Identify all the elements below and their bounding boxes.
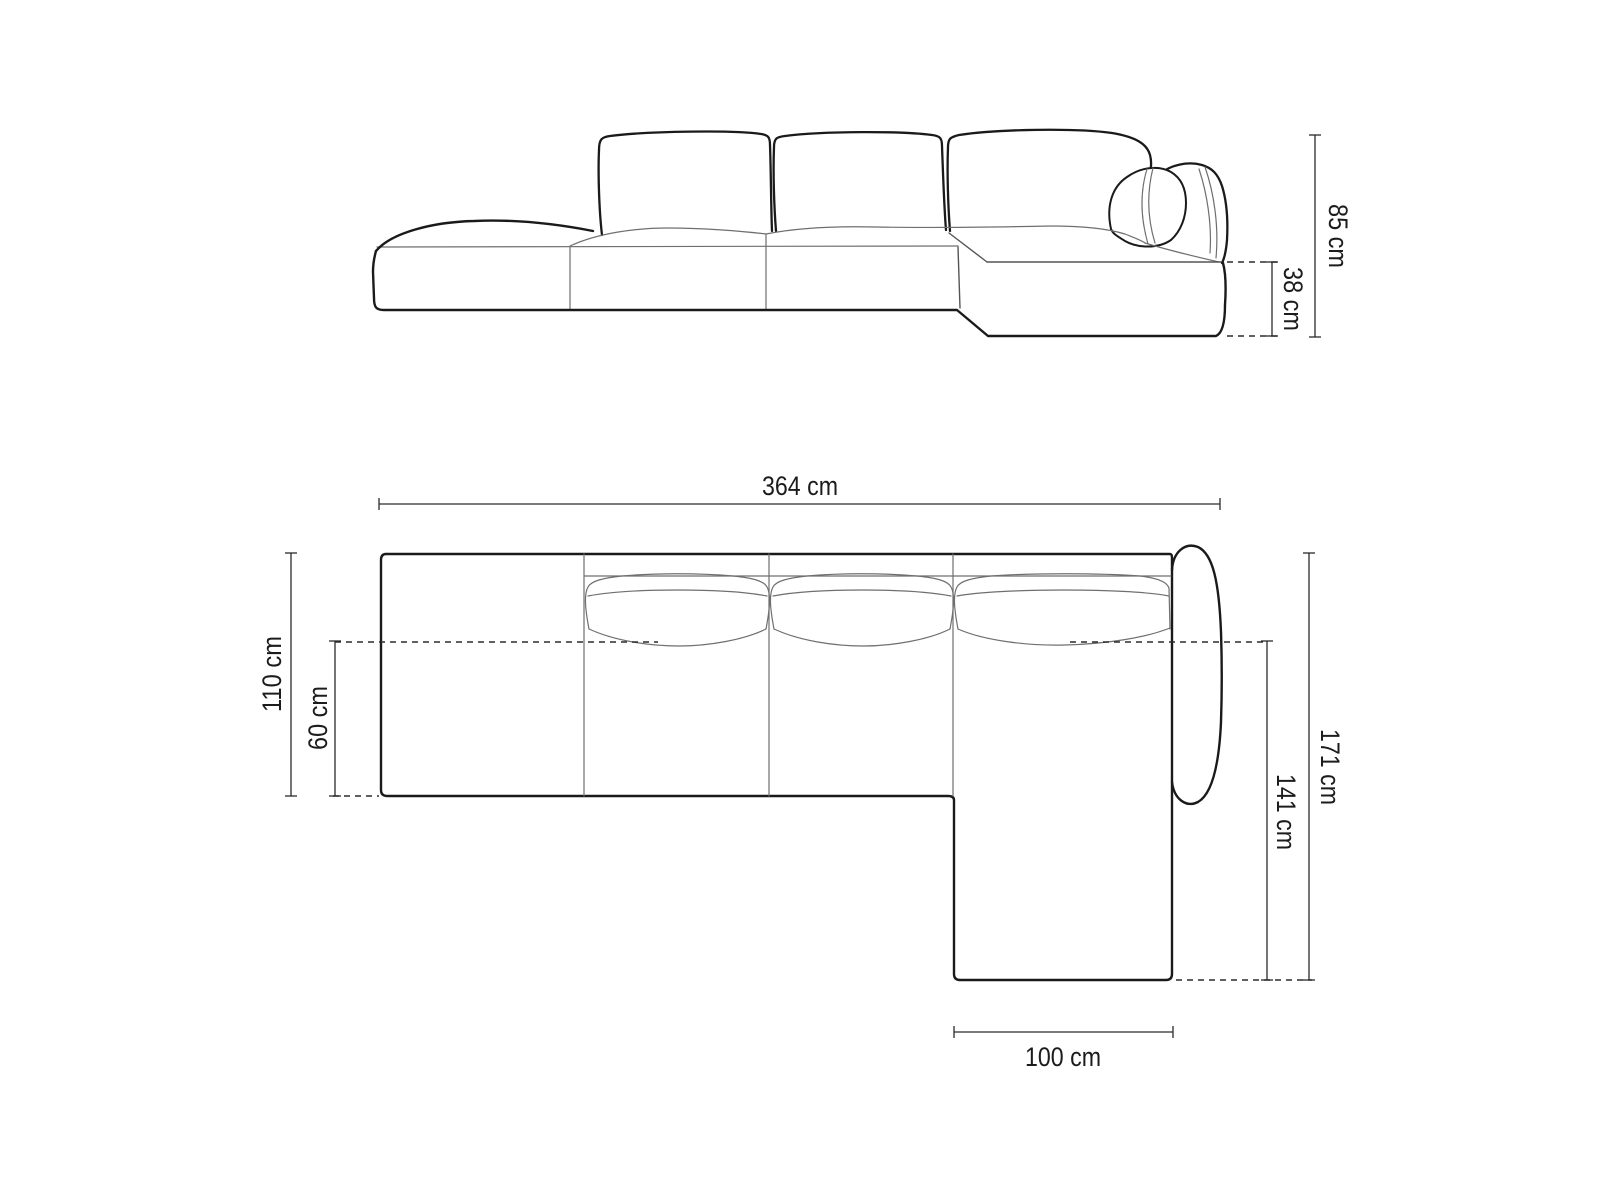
dim-label-100cm: 100 cm <box>1025 1042 1101 1072</box>
dim-label-60cm: 60 cm <box>303 686 333 750</box>
dim-label-141cm: 141 cm <box>1271 774 1301 850</box>
dimension-chaise-length: 141 cm <box>1070 641 1312 980</box>
top-plan-view: 364 cm 110 cm 60 cm 171 cm <box>257 471 1345 1072</box>
dim-label-38cm: 38 cm <box>1278 267 1308 331</box>
front-elevation-view: 85 cm 38 cm <box>373 130 1353 337</box>
back-cushion-2 <box>774 132 946 231</box>
plan-seat-cushion-3 <box>954 574 1170 645</box>
dim-label-364cm: 364 cm <box>762 471 838 501</box>
dimension-diagram: 85 cm 38 cm <box>0 0 1600 1200</box>
dimension-seat-depth: 60 cm <box>303 641 658 796</box>
dimension-total-height: 85 cm <box>1309 135 1353 337</box>
seat-front-top-edge <box>377 246 958 247</box>
dim-label-110cm: 110 cm <box>257 636 287 712</box>
corner-seat-diagonal-edge <box>949 233 987 262</box>
dimension-chaise-width: 100 cm <box>954 1026 1173 1072</box>
dimension-total-length: 364 cm <box>379 471 1220 510</box>
dim-label-85cm: 85 cm <box>1323 204 1353 268</box>
plan-seat-cushion-1 <box>585 574 769 646</box>
dimension-base-height: 38 cm <box>1227 262 1308 336</box>
dimension-right-side-depth: 171 cm <box>1303 553 1345 980</box>
dim-label-171cm: 171 cm <box>1315 729 1345 805</box>
corner-base-vertical-edge <box>958 247 960 308</box>
sofa-front-drawing <box>373 130 1227 336</box>
sofa-base-outline <box>373 251 1226 336</box>
side-bolster-plan <box>1172 546 1222 804</box>
back-cushion-1 <box>599 132 772 235</box>
plan-body-outline <box>381 554 1172 980</box>
sofa-plan-drawing <box>381 546 1222 980</box>
plan-seat-cushion-2 <box>770 574 953 646</box>
dimension-total-depth: 110 cm <box>257 553 297 796</box>
